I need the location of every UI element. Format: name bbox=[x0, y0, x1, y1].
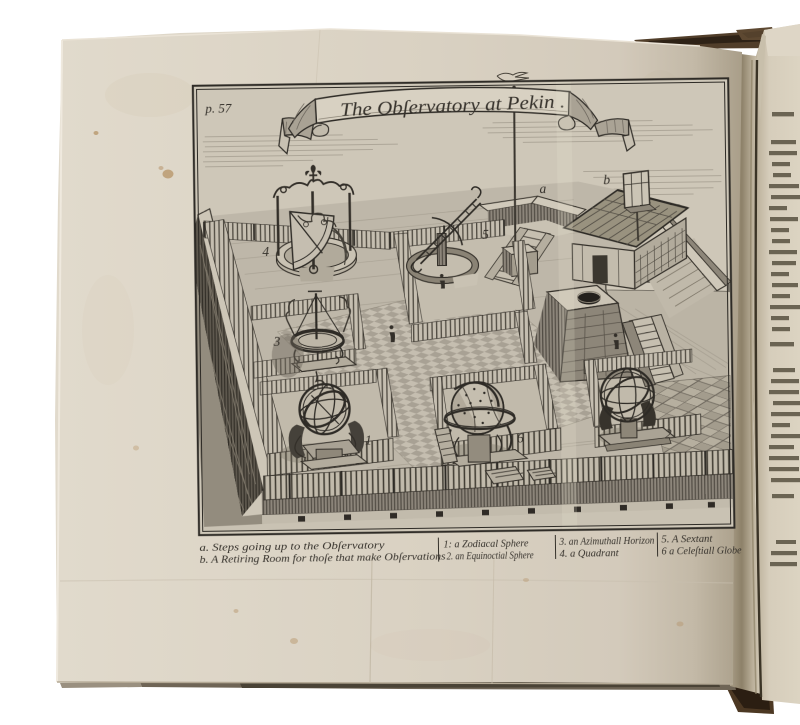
svg-text:6: 6 bbox=[517, 430, 524, 445]
svg-text:3. an Azimuthall Horizon: 3. an Azimuthall Horizon bbox=[558, 535, 654, 548]
svg-text:6 a Celeſtiall Globe: 6 a Celeſtiall Globe bbox=[661, 544, 741, 557]
svg-text:4: 4 bbox=[262, 244, 269, 259]
svg-text:b: b bbox=[603, 172, 610, 187]
svg-text:2. an Equinoctial Sphere: 2. an Equinoctial Sphere bbox=[447, 549, 534, 562]
svg-text:1: 1 bbox=[365, 433, 372, 448]
svg-text:2: 2 bbox=[665, 426, 672, 441]
svg-text:3: 3 bbox=[272, 334, 280, 349]
svg-text:a: a bbox=[539, 181, 546, 196]
svg-text:5: 5 bbox=[482, 227, 489, 242]
svg-text:4. a Quadrant: 4. a Quadrant bbox=[559, 547, 619, 560]
svg-text:p. 57: p. 57 bbox=[204, 100, 232, 115]
svg-text:5. A Sextant: 5. A Sextant bbox=[661, 533, 713, 546]
